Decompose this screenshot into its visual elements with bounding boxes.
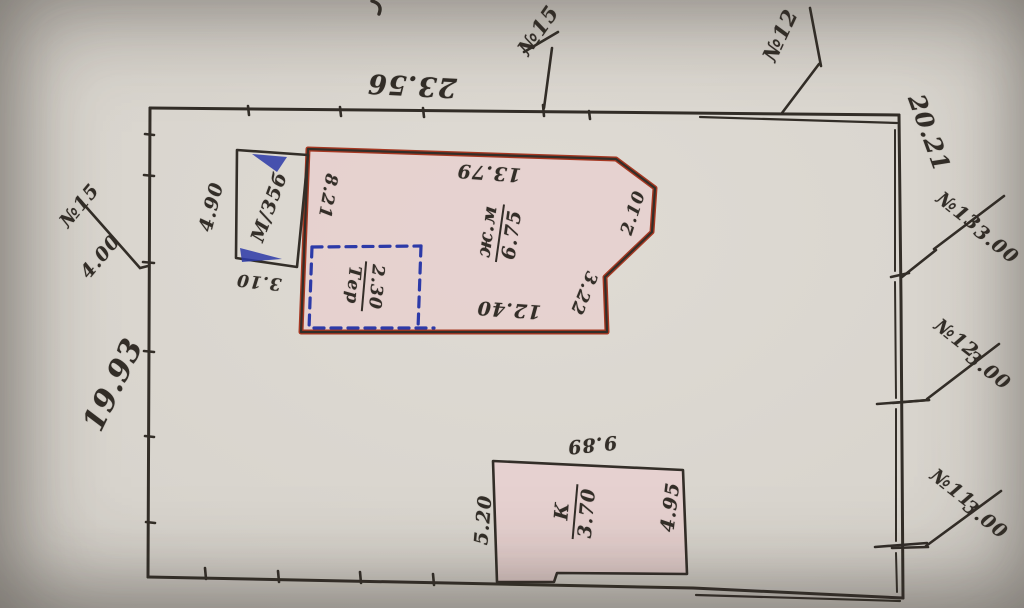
kbld-dim-9-89: 9.89: [566, 432, 618, 456]
house-dim-13-79: 13.79: [456, 160, 522, 183]
house-dim-12-40: 12.40: [476, 297, 542, 320]
annex-label-upper: 2.30: [365, 264, 386, 311]
leader-point-15-top: [544, 48, 552, 108]
boundary-right: [899, 115, 903, 598]
boundary-top: [150, 108, 899, 115]
boundary-right-inner-2: [895, 282, 896, 398]
bar-point-12-top: [810, 8, 821, 66]
boundary-left: [148, 108, 150, 577]
dim-top-23-56: 23.56: [367, 69, 458, 101]
leader-point-12-top: [782, 64, 819, 113]
garage-corner-mark-top: [252, 154, 287, 172]
annex-label-lower: Тер: [342, 265, 362, 305]
leader-point-12-right: [893, 400, 929, 403]
stray-pen-mark: [372, 1, 380, 14]
garage-corner-mark-bottom: [240, 248, 282, 262]
kbld-label-upper: К: [552, 501, 573, 521]
sketch-sheet: 23.56№15№1220.21№133.00№123.00№113.00№15…: [0, 0, 1024, 608]
house-type-label: ж.м6.75: [475, 204, 526, 262]
garage-dim-3-10: 3.10: [236, 270, 283, 292]
annex-label: 2.30Тер: [342, 262, 386, 311]
leader-point-11: [892, 547, 928, 548]
boundary-right-inner-4: [896, 553, 897, 592]
kbld-label: К3.70: [551, 485, 599, 539]
leader-point-13: [902, 250, 936, 277]
boundary-top-second-line: [700, 117, 897, 123]
kbld-label-lower: 3.70: [576, 487, 599, 539]
kbld-dim-5-20: 5.20: [472, 494, 495, 546]
